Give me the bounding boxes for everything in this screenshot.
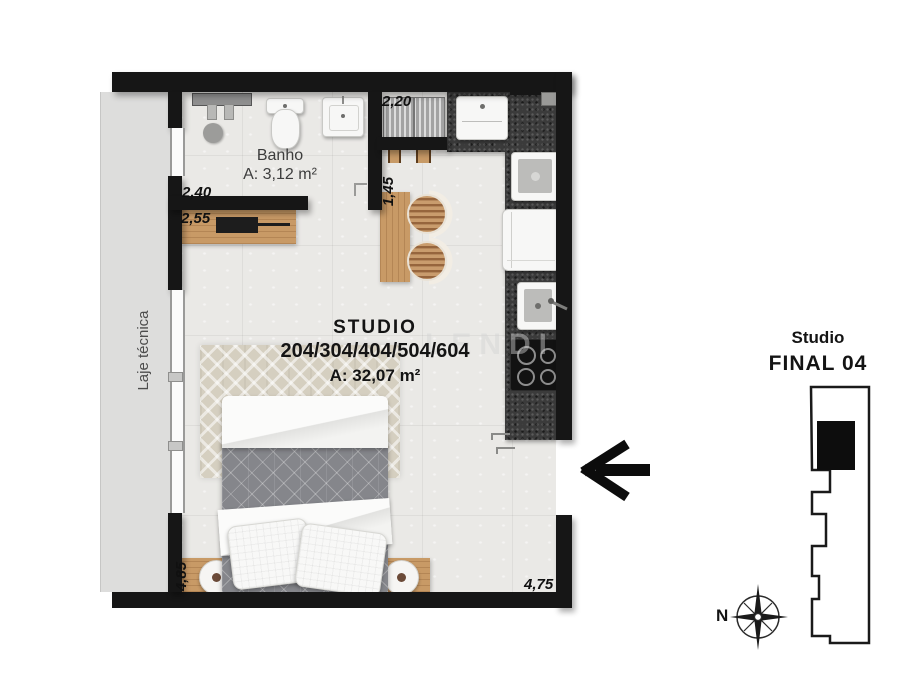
- burner-icon: [517, 368, 535, 386]
- bed: [222, 396, 388, 592]
- wall-left-b: [168, 176, 182, 290]
- entrance-arrow-icon: [583, 444, 650, 497]
- keyplan-building-outline: [811, 387, 869, 643]
- studio-area-label: A: 32,07 m²: [300, 366, 450, 386]
- kitchen-sink-drain: [535, 303, 541, 309]
- sliding-door-post-left: [388, 148, 401, 163]
- laundry-tub: [456, 96, 508, 140]
- bed-sheet-top: [222, 396, 388, 448]
- compass-north-label: N: [716, 606, 728, 626]
- studio-units-label: 204/304/404/504/604: [260, 340, 490, 363]
- toilet-bowl: [271, 109, 300, 149]
- tv-soundbar: [258, 223, 290, 226]
- wall-top: [112, 72, 572, 92]
- bathroom-name-label: Banho: [230, 147, 330, 165]
- window-mullion: [168, 372, 183, 382]
- bathroom-area-label: A: 3,12 m²: [225, 166, 335, 184]
- dim-bathroom-width: 2,40: [182, 184, 211, 201]
- dim-service-width: 2,20: [382, 93, 411, 110]
- wall-left-a: [168, 92, 182, 128]
- compass-rose-icon: [730, 584, 788, 650]
- side-table-left-center: [212, 573, 221, 582]
- shower-control-right: [224, 104, 234, 120]
- toilet-flush-button: [283, 104, 287, 108]
- fridge: [502, 209, 561, 271]
- dim-desk-width: 2,55: [181, 210, 210, 227]
- shower-glass: [192, 93, 252, 106]
- studio-name-label: STUDIO: [300, 317, 450, 339]
- microwave-plate: [531, 172, 540, 181]
- burner-icon: [540, 369, 556, 385]
- kitchen-sink: [517, 282, 560, 330]
- bed-pillow-right: [294, 522, 388, 597]
- keyplan-unit-marker: [817, 421, 855, 470]
- sliding-door-post-right: [416, 148, 431, 163]
- wall-service-south: [377, 137, 447, 150]
- bathroom-faucet-icon: [342, 96, 344, 104]
- studio-window: [170, 290, 185, 513]
- keyplan-title: Studio: [768, 328, 868, 348]
- laundry-tub-edge: [462, 121, 502, 122]
- shower-control-left: [207, 104, 217, 120]
- side-table-right-center: [397, 573, 406, 582]
- laundry-tub-drain: [480, 104, 485, 109]
- window-mullion: [168, 441, 183, 451]
- bathroom-sink: [322, 97, 364, 137]
- dim-left-side: 4,85: [173, 562, 190, 591]
- fridge-handle: [507, 260, 555, 261]
- shower-head-icon: [203, 123, 223, 143]
- bathroom-sink-basin: [329, 105, 359, 131]
- microwave: [511, 152, 560, 201]
- wall-bottom: [112, 592, 572, 608]
- laje-tecnica-label: Laje técnica: [135, 303, 152, 398]
- side-table-right: [384, 560, 419, 595]
- bathroom-sink-drain: [341, 114, 345, 118]
- wall-right-upper: [556, 72, 572, 440]
- dim-bottom-side: 4,75: [524, 576, 553, 593]
- keyplan-subtitle: FINAL 04: [758, 352, 878, 376]
- washing-closet-divider: [413, 98, 415, 140]
- floor-plan-page: Laje técnica: [0, 0, 900, 682]
- tv: [216, 217, 258, 233]
- bathroom-window: [170, 128, 185, 176]
- dim-counter-length: 1,45: [380, 177, 397, 206]
